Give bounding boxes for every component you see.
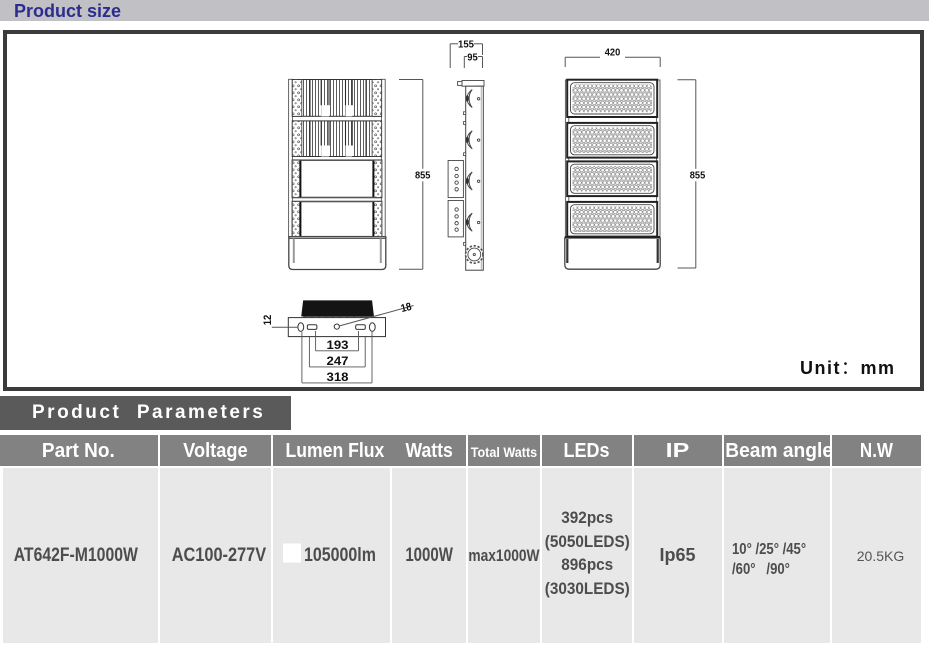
svg-text:420: 420 [605, 47, 621, 59]
svg-text:18: 18 [400, 301, 413, 315]
svg-text:855: 855 [415, 170, 431, 182]
svg-text:95: 95 [467, 51, 478, 63]
svg-text:247: 247 [327, 356, 349, 368]
svg-text:855: 855 [690, 170, 706, 182]
svg-text:318: 318 [327, 372, 350, 384]
svg-text:193: 193 [327, 340, 349, 352]
svg-text:12: 12 [262, 315, 274, 326]
svg-text:155: 155 [458, 39, 474, 51]
